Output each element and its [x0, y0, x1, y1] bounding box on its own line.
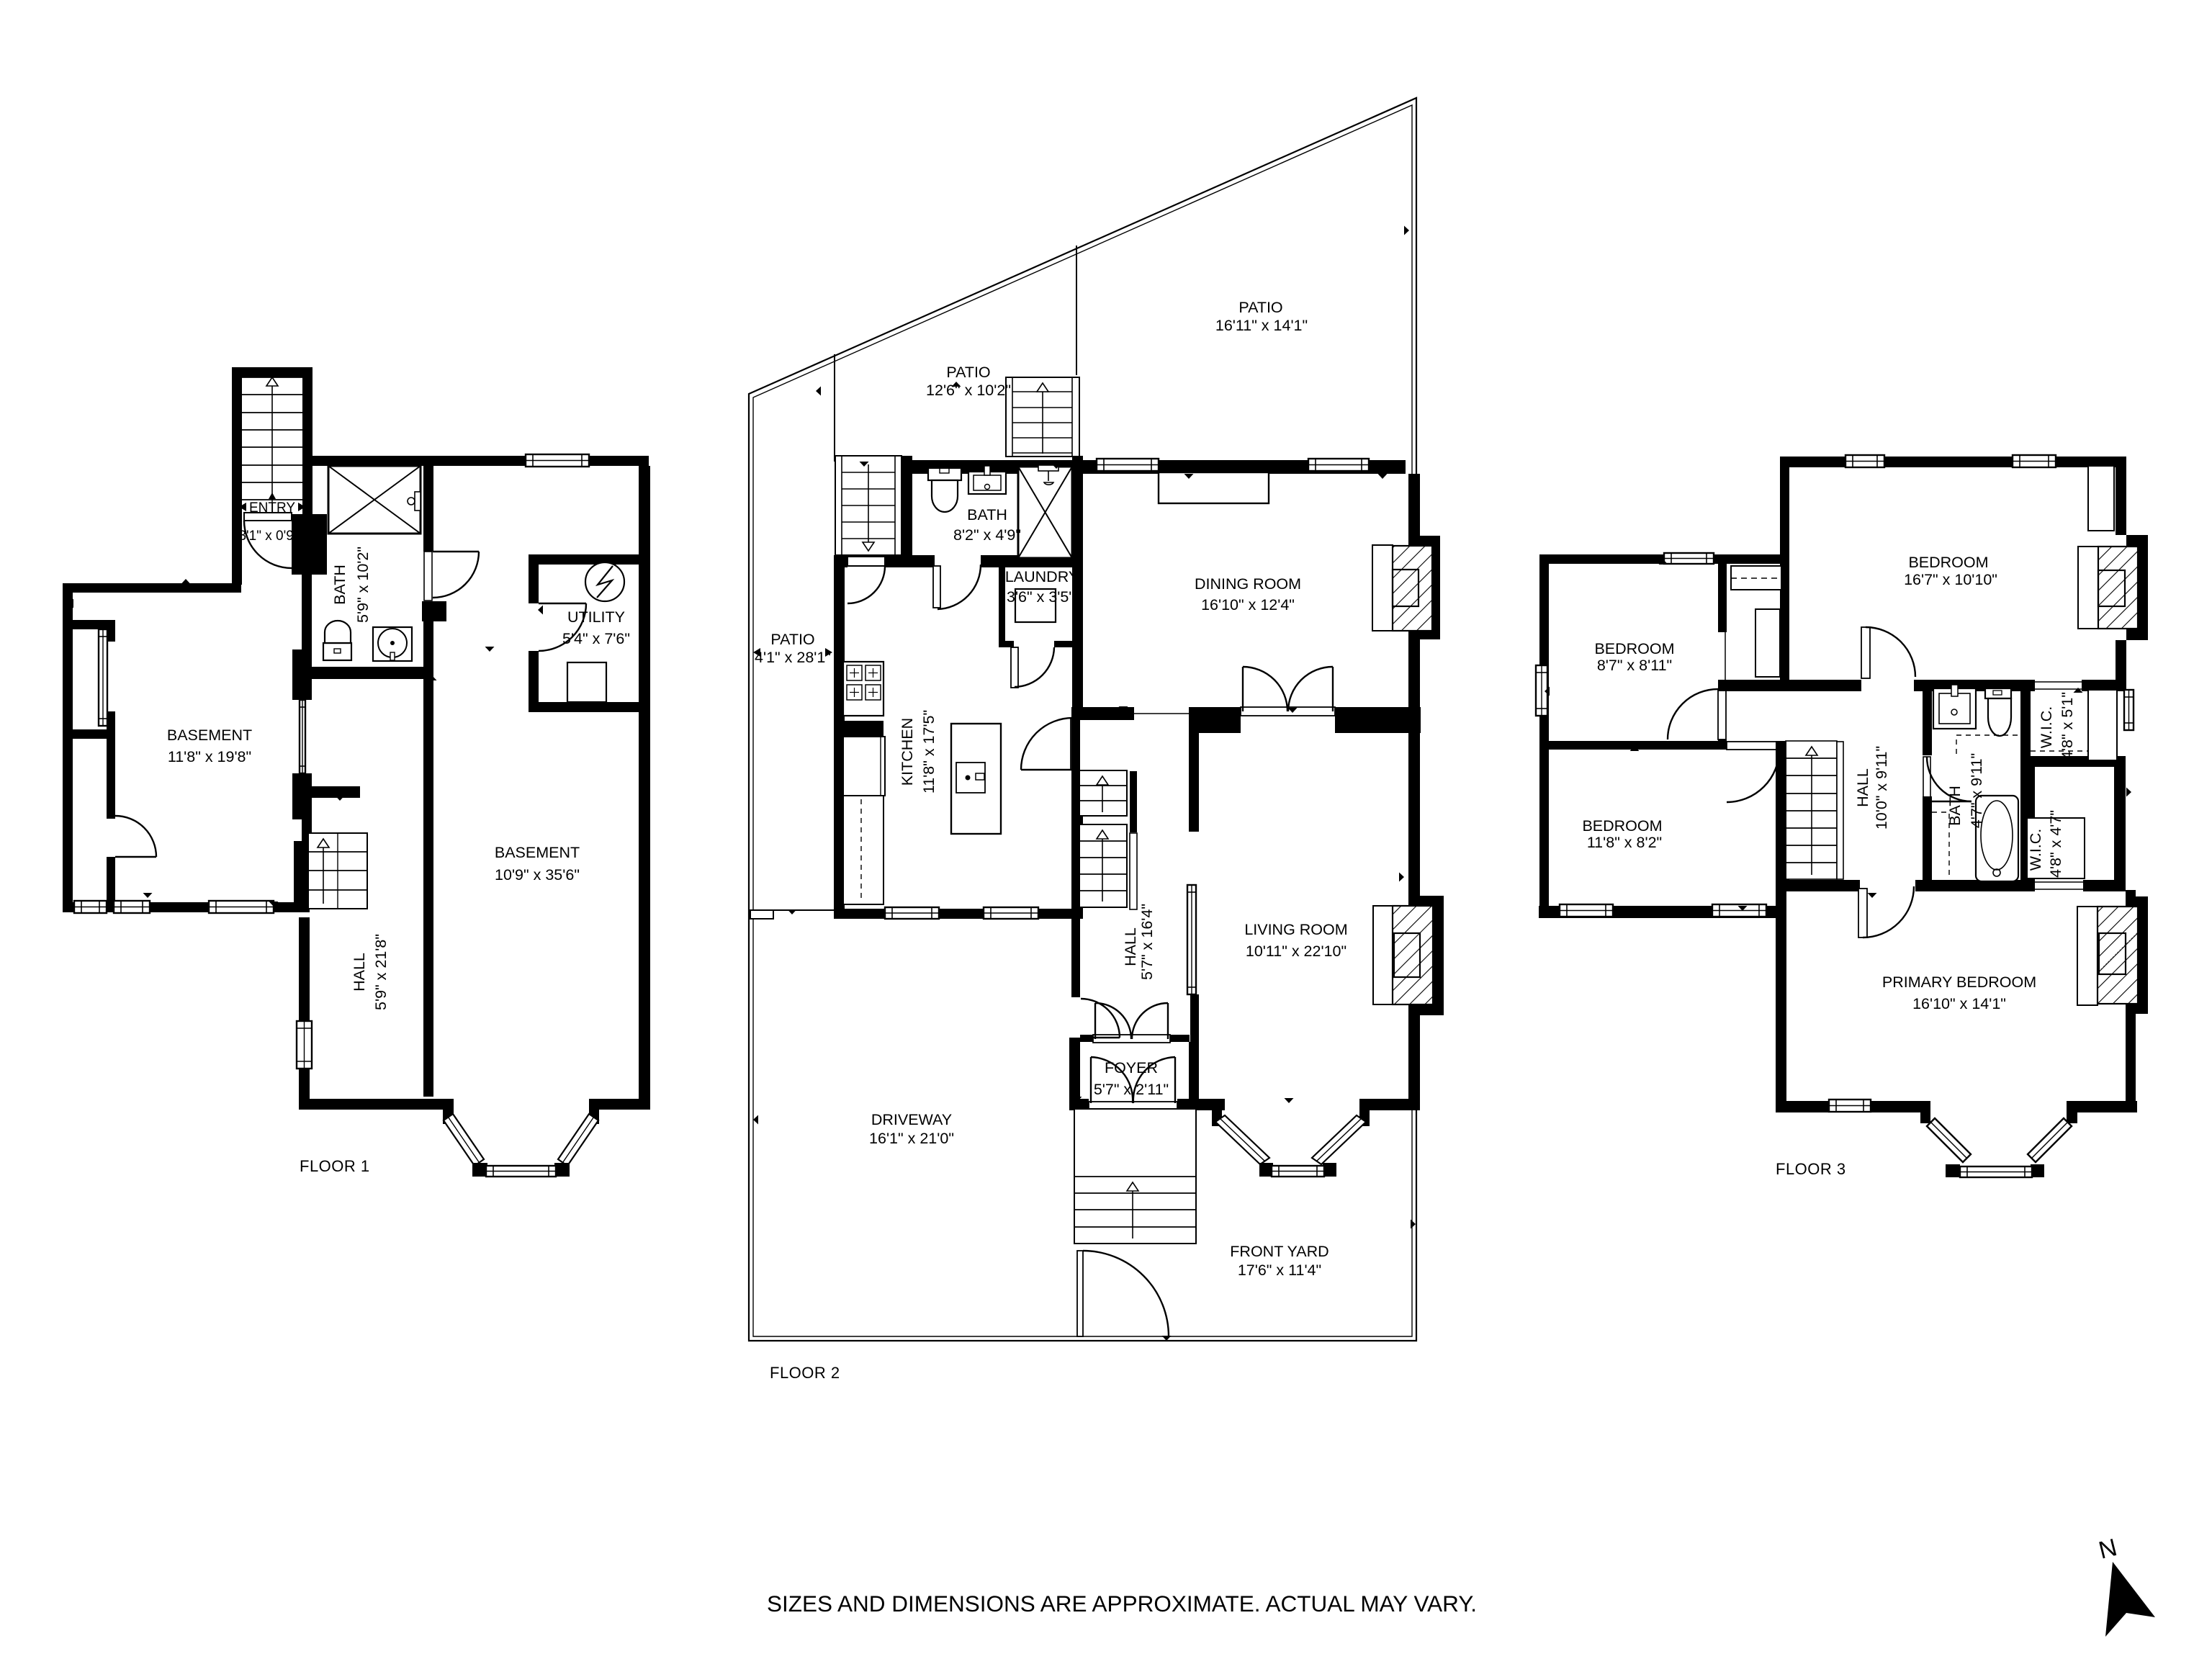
svg-text:HALL: HALL: [351, 953, 368, 992]
svg-text:BEDROOM: BEDROOM: [1582, 817, 1662, 835]
svg-text:10'11" x 22'10": 10'11" x 22'10": [1246, 943, 1346, 960]
svg-text:LIVING ROOM: LIVING ROOM: [1244, 921, 1347, 938]
svg-text:4'1" x 28'1": 4'1" x 28'1": [755, 649, 831, 666]
svg-text:11'8" x 8'2": 11'8" x 8'2": [1587, 834, 1662, 851]
svg-text:16'1" x 21'0": 16'1" x 21'0": [869, 1130, 954, 1147]
svg-text:PATIO: PATIO: [770, 631, 814, 648]
svg-text:FLOOR 3: FLOOR 3: [1776, 1160, 1846, 1178]
svg-text:4'7" x 9'11": 4'7" x 9'11": [1968, 753, 1985, 828]
svg-text:W.I.C.: W.I.C.: [2038, 706, 2055, 749]
svg-text:BASEMENT: BASEMENT: [167, 727, 252, 744]
svg-text:17'6" x 11'4": 17'6" x 11'4": [1238, 1262, 1321, 1279]
svg-text:PRIMARY BEDROOM: PRIMARY BEDROOM: [1882, 974, 2036, 991]
svg-text:FLOOR 2: FLOOR 2: [770, 1364, 840, 1382]
svg-text:HALL: HALL: [1122, 927, 1139, 966]
svg-text:16'10" x 12'4": 16'10" x 12'4": [1201, 596, 1295, 613]
svg-text:3'6" x 3'5": 3'6" x 3'5": [1007, 588, 1074, 606]
svg-text:DINING ROOM: DINING ROOM: [1195, 575, 1301, 593]
svg-text:16'7" x 10'10": 16'7" x 10'10": [1904, 571, 1997, 588]
svg-text:DRIVEWAY: DRIVEWAY: [871, 1111, 952, 1128]
svg-text:3'1" x 0'9": 3'1" x 0'9": [238, 529, 298, 544]
svg-text:5'4" x 7'6": 5'4" x 7'6": [562, 630, 630, 647]
svg-text:4'8" x 5'1": 4'8" x 5'1": [2059, 692, 2076, 760]
svg-text:4'8" x 4'7": 4'8" x 4'7": [2047, 810, 2064, 878]
svg-text:BEDROOM: BEDROOM: [1908, 554, 1988, 571]
svg-text:8'7" x 8'11": 8'7" x 8'11": [1597, 657, 1672, 674]
svg-text:PATIO: PATIO: [946, 364, 990, 381]
svg-text:SIZES AND DIMENSIONS ARE APPRO: SIZES AND DIMENSIONS ARE APPROXIMATE. AC…: [767, 1591, 1477, 1617]
svg-text:8'2" x 4'9": 8'2" x 4'9": [953, 526, 1021, 544]
svg-text:UTILITY: UTILITY: [567, 608, 625, 626]
svg-text:BATH: BATH: [967, 506, 1007, 523]
svg-text:LAUNDRY: LAUNDRY: [1005, 568, 1079, 585]
svg-text:FOYER: FOYER: [1105, 1059, 1158, 1076]
svg-text:12'6" x 10'2": 12'6" x 10'2": [926, 382, 1011, 399]
svg-text:11'8" x 19'8": 11'8" x 19'8": [168, 748, 251, 765]
svg-text:HALL: HALL: [1854, 768, 1871, 807]
svg-text:BATH: BATH: [1946, 786, 1964, 826]
svg-text:KITCHEN: KITCHEN: [899, 718, 916, 786]
svg-text:PATIO: PATIO: [1238, 299, 1282, 316]
svg-text:5'9" x 10'2": 5'9" x 10'2": [354, 547, 372, 623]
svg-text:BATH: BATH: [331, 565, 349, 605]
svg-text:10'9" x 35'6": 10'9" x 35'6": [495, 866, 580, 884]
svg-text:BEDROOM: BEDROOM: [1594, 640, 1674, 657]
svg-text:5'9" x 21'8": 5'9" x 21'8": [372, 934, 390, 1010]
svg-text:16'10" x 14'1": 16'10" x 14'1": [1912, 995, 2006, 1012]
svg-text:10'0" x 9'11": 10'0" x 9'11": [1873, 746, 1890, 829]
svg-text:16'11" x 14'1": 16'11" x 14'1": [1215, 317, 1308, 334]
svg-text:FLOOR 1: FLOOR 1: [300, 1157, 370, 1175]
svg-text:FRONT YARD: FRONT YARD: [1230, 1243, 1328, 1260]
svg-text:11'8" x 17'5": 11'8" x 17'5": [920, 710, 938, 793]
svg-text:BASEMENT: BASEMENT: [495, 844, 580, 861]
svg-text:5'7" x 16'4": 5'7" x 16'4": [1138, 904, 1156, 980]
svg-text:W.I.C.: W.I.C.: [2027, 829, 2044, 871]
